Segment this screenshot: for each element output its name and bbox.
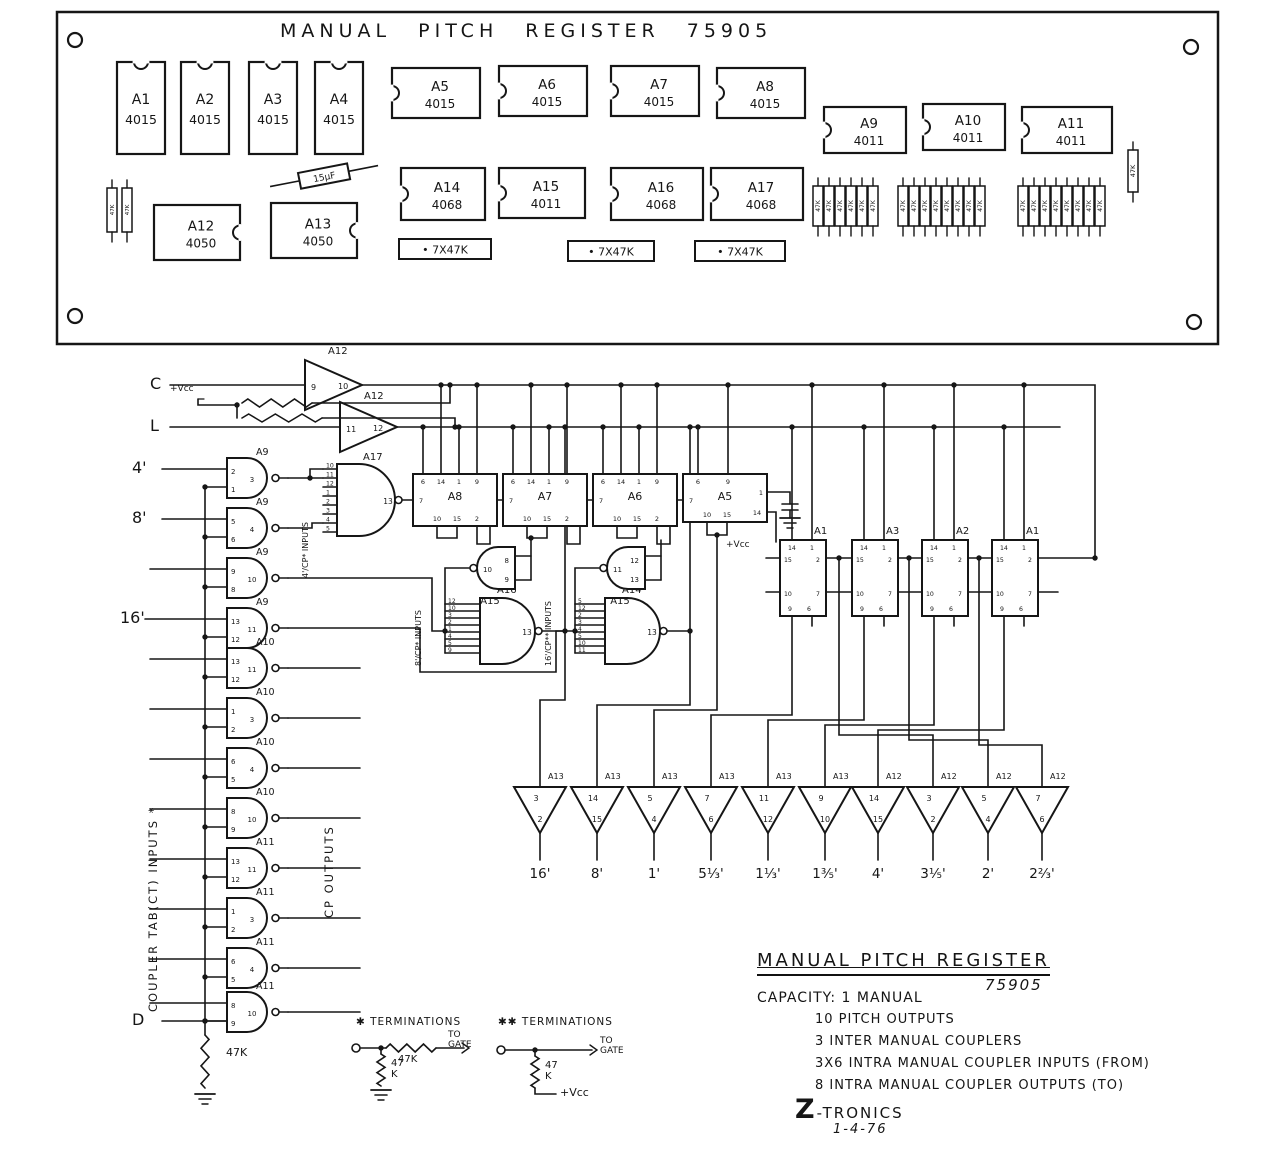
- pitch-output-label: 5⅓': [698, 866, 723, 882]
- junction-dot: [861, 424, 866, 429]
- resistor-value: 47K: [911, 199, 918, 212]
- pin-label: 6: [421, 478, 425, 486]
- pin-label: 3: [250, 916, 254, 924]
- chip-ref: A9: [256, 447, 269, 458]
- pin-label: 2: [475, 515, 479, 523]
- junction-dot: [202, 534, 207, 539]
- ic-part: 4011: [531, 197, 562, 211]
- pin-label: 3: [578, 619, 582, 626]
- pin-label: 3: [533, 794, 538, 803]
- junction-dot: [931, 424, 936, 429]
- resistor-value: 47K: [110, 204, 116, 215]
- pin-label: 6: [601, 478, 605, 486]
- pin-label: 4: [578, 626, 582, 633]
- pitch-output-label: 8': [591, 866, 603, 882]
- pin-label: 13: [647, 628, 657, 637]
- pin-label: 9: [1000, 606, 1004, 613]
- chip-ref: A8: [448, 490, 463, 503]
- pin-label: 2: [888, 557, 892, 564]
- pin-label: 3: [448, 612, 452, 619]
- pin-label: 2: [565, 515, 569, 523]
- pin-label: 7: [1035, 794, 1040, 803]
- pin-label: 1: [448, 626, 452, 633]
- junction-dot: [695, 424, 700, 429]
- legend-brand: Z-TRONICS: [795, 1094, 904, 1125]
- pin-label: 9: [860, 606, 864, 613]
- pin-label: 8: [505, 557, 509, 565]
- resistor-value: 47K: [815, 199, 822, 212]
- ic-name: A8: [756, 79, 774, 95]
- ic-a2: [181, 62, 229, 154]
- pin-label: 9: [231, 1020, 235, 1028]
- pin-label: 11: [248, 626, 257, 634]
- junction-dot: [510, 424, 515, 429]
- chip-right-a3-1: [852, 540, 898, 616]
- pin-label: 1: [457, 478, 461, 486]
- pin-label: 4: [651, 815, 656, 824]
- pin-label: 9: [726, 478, 730, 486]
- chip-ref: A12: [364, 391, 384, 402]
- chip-right-a1-0: [780, 540, 826, 616]
- pin-label: 10: [338, 382, 348, 391]
- ic-name: A11: [1058, 116, 1084, 132]
- pin-label: 2: [930, 815, 935, 824]
- junction-dot: [438, 382, 443, 387]
- pin-label: 5: [231, 776, 235, 784]
- pin-label: 14: [527, 478, 535, 486]
- pin-label: 2: [448, 619, 452, 626]
- chip-ref: A12: [1050, 772, 1066, 781]
- pin-label: 14: [788, 545, 796, 552]
- junction-dot: [687, 424, 692, 429]
- vcc-a5-label: +Vcc: [726, 540, 750, 550]
- pin-label: 7: [509, 497, 513, 505]
- resistor-pack-text: • 7X47K: [588, 246, 635, 259]
- ic-name: A5: [431, 79, 449, 95]
- cp4-inputs-note: 4'/CP* INPUTS: [301, 522, 310, 578]
- pin-label: 12: [578, 605, 586, 612]
- ic-name: A12: [188, 219, 214, 235]
- output-buffer-16: [514, 787, 566, 833]
- junction-dot: [202, 724, 207, 729]
- junction-dot: [202, 774, 207, 779]
- resistor-value: 47K: [900, 199, 907, 212]
- pin-label: 2: [655, 515, 659, 523]
- coupler-tab-inputs-note: COUPLER TAB(CT) INPUTS *: [146, 806, 160, 1012]
- ic-name: A9: [860, 116, 878, 132]
- chip-ref: A9: [256, 497, 269, 508]
- pin-label: 8: [231, 1002, 235, 1010]
- pitch-output-label: 1⅗': [812, 866, 837, 882]
- pin-label: 1: [952, 545, 956, 552]
- ic-name: A7: [650, 77, 668, 93]
- pin-label: 10: [326, 463, 334, 470]
- ic-part: 4015: [644, 95, 675, 109]
- pin-label: 7: [1028, 591, 1032, 598]
- pitch-output-label: 1': [648, 866, 660, 882]
- output-buffer-1: [799, 787, 851, 833]
- termination1-title: ✱ TERMINATIONS: [356, 1016, 461, 1028]
- wire: [531, 1056, 539, 1088]
- pin-label: 7: [958, 591, 962, 598]
- junction-dot: [202, 674, 207, 679]
- ic-part: 4068: [432, 198, 463, 212]
- pin-label: 4: [448, 633, 452, 640]
- ic-part: 4068: [646, 198, 677, 212]
- chip-ref: A11: [256, 887, 275, 898]
- pin-label: 14: [1000, 545, 1008, 552]
- pin-label: 10: [248, 816, 257, 824]
- ic-part: 4015: [532, 95, 563, 109]
- pulldown-resistor-label: 47K: [226, 1046, 247, 1059]
- resistor-value: 47K: [1097, 199, 1104, 212]
- pin-label: 10: [248, 1010, 257, 1018]
- chip-ref: A12: [996, 772, 1012, 781]
- pitch-output-label: 16': [530, 866, 551, 882]
- pin-label: 1: [637, 478, 641, 486]
- pin-label: 14: [588, 794, 598, 803]
- pin-label: 15: [723, 511, 731, 519]
- pin-label: 15: [926, 557, 934, 564]
- junction-dot: [564, 382, 569, 387]
- chip-ref: A10: [256, 637, 275, 648]
- junction-dot: [562, 424, 567, 429]
- legend-item: 3 INTER MANUAL COUPLERS: [815, 1034, 1022, 1049]
- pin-label: 4: [250, 526, 255, 534]
- junction-dot: [636, 424, 641, 429]
- pin-label: 9: [231, 826, 235, 834]
- pin-label: 10: [820, 815, 830, 824]
- junction-dot: [532, 1047, 537, 1052]
- pin-label: 10: [784, 591, 792, 598]
- resistor-value: 47K: [922, 199, 929, 212]
- pin-label: 12: [630, 557, 639, 565]
- junction-dot: [202, 974, 207, 979]
- chip-ref: A15: [480, 596, 500, 607]
- pin-label: 1: [231, 908, 235, 916]
- resistor-value: 47K: [826, 199, 833, 212]
- legend-part-number: 75905: [985, 976, 1043, 994]
- resistor-value: 47K: [1031, 199, 1038, 212]
- pin-label: 5: [231, 976, 235, 984]
- pin-label: 2: [958, 557, 962, 564]
- ic-part: 4011: [854, 134, 885, 148]
- junction-dot: [202, 924, 207, 929]
- pin-label: 12: [373, 424, 383, 433]
- pin-label: 9: [788, 606, 792, 613]
- resistor-value: 47K: [1129, 164, 1137, 177]
- pin-label: 4: [250, 766, 255, 774]
- termination2-title: ✱✱ TERMINATIONS: [498, 1016, 613, 1028]
- junction-dot: [572, 628, 577, 633]
- pin-label: 6: [807, 606, 811, 613]
- pin-label: 5: [231, 518, 235, 526]
- junction-dot: [687, 628, 692, 633]
- pin-label: 1: [810, 545, 814, 552]
- junction-dot: [202, 484, 207, 489]
- pin-label: 4: [250, 966, 255, 974]
- junction-dot: [1092, 555, 1097, 560]
- chip-ref: A12: [941, 772, 957, 781]
- junction-dot: [1001, 424, 1006, 429]
- junction-dot: [714, 532, 719, 537]
- junction-dot: [202, 824, 207, 829]
- pin-label: 14: [617, 478, 625, 486]
- junction-dot: [456, 424, 461, 429]
- junction-dot: [836, 555, 841, 560]
- wire: [535, 1088, 556, 1094]
- resistor-pack-text: • 7X47K: [717, 246, 764, 259]
- wire: [386, 1044, 436, 1052]
- pin-label: 2: [326, 499, 330, 506]
- legend-title: MANUAL PITCH REGISTER: [757, 950, 1050, 976]
- ic-name: A4: [330, 92, 349, 108]
- ic-part: 4011: [953, 131, 984, 145]
- legend-item: 10 PITCH OUTPUTS: [815, 1012, 955, 1027]
- wire: [711, 616, 792, 787]
- pin-label: 12: [231, 876, 240, 884]
- schematic-drawing: A14015A24015A34015A44015A54015A64015A740…: [0, 0, 1270, 1168]
- chip-ref: A2: [956, 526, 969, 537]
- pin-label: 12: [231, 636, 240, 644]
- chip-ref: A11: [256, 937, 275, 948]
- ic-part: 4015: [257, 112, 289, 127]
- chip-ref: A10: [256, 787, 275, 798]
- pin-label: 5: [326, 526, 330, 533]
- junction-dot: [202, 584, 207, 589]
- junction-dot: [600, 424, 605, 429]
- chip-ref: A11: [256, 837, 275, 848]
- schematic-sheet: A14015A24015A34015A44015A54015A64015A740…: [0, 0, 1270, 1168]
- junction-dot: [474, 382, 479, 387]
- resistor-value: 47K: [944, 199, 951, 212]
- pin-label: 13: [522, 628, 532, 637]
- resistor-value: 47K: [125, 204, 131, 215]
- pin-label: 7: [888, 591, 892, 598]
- junction-dot: [725, 382, 730, 387]
- output-buffer-2: [962, 787, 1014, 833]
- pin-label: 2: [231, 926, 235, 934]
- resistor-value: 47K: [977, 199, 984, 212]
- pin-label: 14: [869, 794, 879, 803]
- mounting-hole: [1187, 315, 1201, 329]
- chip-ref: A9: [256, 547, 269, 558]
- pin-label: 6: [231, 958, 236, 966]
- junction-dot: [528, 382, 533, 387]
- pin-label: 10: [703, 511, 711, 519]
- wire: [201, 1035, 209, 1088]
- pin-label: 1: [231, 486, 235, 494]
- pin-label: 15: [996, 557, 1004, 564]
- junction-dot: [202, 874, 207, 879]
- pin-label: 11: [613, 566, 622, 574]
- pin-label: 11: [346, 425, 356, 434]
- pitch-output-label: 2⅔': [1029, 866, 1054, 882]
- pin-label: 3: [250, 716, 254, 724]
- chip-right-a2-2: [922, 540, 968, 616]
- pin-label: 5: [578, 633, 582, 640]
- pin-label: 13: [231, 618, 240, 626]
- cp16-inputs-note: 16'/CP** INPUTS: [544, 601, 553, 666]
- pin-label: 3: [250, 476, 254, 484]
- junction-dot: [654, 382, 659, 387]
- pin-label: 15: [592, 815, 602, 824]
- pin-label: 15: [633, 515, 641, 523]
- pin-label: 7: [689, 497, 693, 505]
- output-buffer-5: [685, 787, 737, 833]
- termination1-terminal: [352, 1044, 360, 1052]
- pin-label: 9: [655, 478, 659, 486]
- junction-dot: [789, 424, 794, 429]
- pin-label: 7: [704, 794, 709, 803]
- junction-dot: [906, 555, 911, 560]
- pin-label: 10: [613, 515, 621, 523]
- ic-part: 4050: [186, 237, 217, 251]
- termination2-terminal: [497, 1046, 505, 1054]
- resistor-value: 47K: [870, 199, 877, 212]
- pin-label: 7: [419, 497, 423, 505]
- chip-ref: A9: [256, 597, 269, 608]
- input-8ft-label: 8': [132, 508, 147, 527]
- pin-label: 13: [231, 858, 240, 866]
- resistor-value: 47K: [1075, 199, 1082, 212]
- junction-dot: [528, 535, 533, 540]
- pin-label: 6: [1019, 606, 1023, 613]
- pin-label: 1: [759, 489, 763, 497]
- pin-label: 6: [231, 758, 236, 766]
- chip-ref: A6: [628, 490, 643, 503]
- ic-a3: [249, 62, 297, 154]
- mounting-hole: [1184, 40, 1198, 54]
- chip-ref: A13: [605, 772, 621, 781]
- pin-label: 9: [818, 794, 823, 803]
- chip-ref: A11: [256, 981, 275, 992]
- pin-label: 5: [647, 794, 652, 803]
- ic-name: A16: [648, 180, 674, 196]
- pin-label: 12: [326, 481, 334, 488]
- wire: [768, 616, 864, 787]
- pin-label: 2: [816, 557, 820, 564]
- pin-label: 13: [383, 497, 393, 506]
- junction-dot: [378, 1045, 383, 1050]
- pin-label: 12: [448, 598, 456, 605]
- wire: [377, 1054, 385, 1086]
- pin-label: 7: [816, 591, 820, 598]
- ic-name: A3: [264, 92, 282, 108]
- pin-label: 5: [578, 598, 582, 605]
- junction-dot: [951, 382, 956, 387]
- chip-right-a1-3: [992, 540, 1038, 616]
- pin-label: 13: [630, 576, 639, 584]
- chip-ref: A13: [548, 772, 564, 781]
- termination1-to-gate-label: TO GATE: [448, 1030, 480, 1050]
- mounting-hole: [68, 33, 82, 47]
- junction-dot: [202, 1018, 207, 1023]
- junction-dot: [447, 382, 452, 387]
- input-l-label: L: [150, 416, 159, 435]
- resistor-value: 47K: [837, 199, 844, 212]
- wire: [767, 492, 790, 504]
- ic-part: 4015: [425, 97, 456, 111]
- termination2-shunt-resistor-label: 47 K: [545, 1060, 563, 1082]
- chip-ref: A7: [538, 490, 553, 503]
- wire: [767, 512, 776, 542]
- chip-ref: A10: [256, 737, 275, 748]
- vcc-label: +Vcc: [170, 384, 194, 394]
- pin-label: 9: [565, 478, 569, 486]
- junction-dot: [307, 475, 312, 480]
- junction-dot: [1021, 382, 1026, 387]
- ic-name: A14: [434, 180, 460, 196]
- termination2-to-gate-label: TO GATE: [600, 1036, 632, 1056]
- pin-label: 1: [882, 545, 886, 552]
- input-16ft-label: 16': [120, 608, 145, 627]
- pin-label: 11: [578, 647, 586, 654]
- ic-part: 4015: [323, 112, 355, 127]
- pin-label: 4: [326, 517, 330, 524]
- pin-label: 1: [326, 490, 330, 497]
- wire: [242, 414, 322, 422]
- ic-name: A13: [305, 217, 331, 233]
- resistor-value: 47K: [1020, 199, 1027, 212]
- pin-label: 6: [1039, 815, 1044, 824]
- pin-label: 9: [311, 383, 316, 392]
- ic-name: A2: [196, 92, 214, 108]
- pin-label: 14: [753, 509, 761, 517]
- junction-dot: [976, 555, 981, 560]
- chip-ref: A1: [1026, 526, 1039, 537]
- pin-label: 1: [547, 478, 551, 486]
- pin-label: 3: [326, 508, 330, 515]
- input-c-label: C: [150, 374, 161, 393]
- ic-part: 4015: [125, 112, 157, 127]
- pin-label: 11: [759, 794, 769, 803]
- termination1-shunt-resistor-label: 47 K: [391, 1058, 409, 1080]
- pin-label: 12: [231, 676, 240, 684]
- pin-label: 10: [856, 591, 864, 598]
- pin-label: 8: [231, 586, 235, 594]
- pin-label: 7: [599, 497, 603, 505]
- pin-label: 4: [985, 815, 990, 824]
- ic-name: A1: [132, 92, 150, 108]
- resistor-value: 47K: [1042, 199, 1049, 212]
- wire: [654, 535, 717, 787]
- pin-label: 6: [949, 606, 953, 613]
- pin-label: 15: [873, 815, 883, 824]
- wire: [198, 399, 237, 405]
- pin-label: 2: [578, 612, 582, 619]
- pin-label: 6: [231, 536, 236, 544]
- resistor-value: 47K: [966, 199, 973, 212]
- chip-ref: A13: [833, 772, 849, 781]
- pin-label: 15: [856, 557, 864, 564]
- ic-part: 4015: [189, 112, 221, 127]
- pin-label: 15: [453, 515, 461, 523]
- resistor-value: 47K: [848, 199, 855, 212]
- pin-label: 10: [248, 576, 257, 584]
- pin-label: 12: [763, 815, 773, 824]
- chip-ref: A3: [886, 526, 899, 537]
- ic-a4: [315, 62, 363, 154]
- output-buffer-2: [1016, 787, 1068, 833]
- wire: [878, 616, 1004, 787]
- pin-label: 10: [448, 605, 456, 612]
- pin-label: 11: [248, 666, 257, 674]
- resistor-pack-text: • 7X47K: [422, 244, 469, 257]
- junction-dot: [234, 402, 239, 407]
- junction-dot: [202, 634, 207, 639]
- chip-ref: A13: [662, 772, 678, 781]
